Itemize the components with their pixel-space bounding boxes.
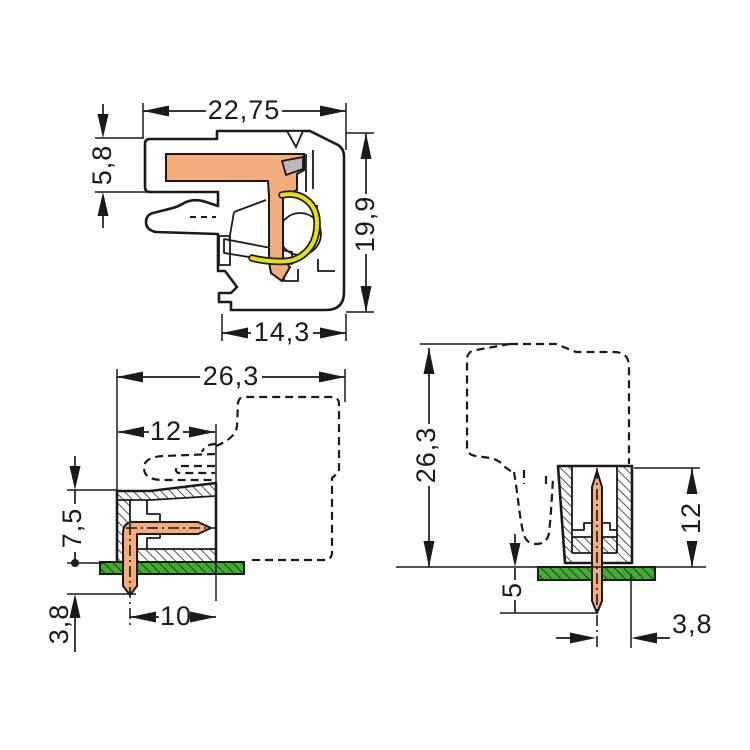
- dim-label-total-height: 26,3: [411, 427, 441, 484]
- dimension-height-right: 19,9: [346, 133, 380, 312]
- dimension-pin-offset: 10: [130, 601, 216, 631]
- dim-label-housing-width: 12: [150, 416, 182, 446]
- dimension-housing-height: 12: [634, 468, 706, 567]
- dim-label-height-above-board: 7,5: [57, 508, 87, 549]
- mating-connector-outline-2: [467, 344, 629, 472]
- chamber-wall-lines: [229, 200, 266, 241]
- technical-drawing-page: 22,75 5,8 19,9 14,3: [0, 0, 750, 750]
- wire-entry-funnel: [287, 131, 303, 147]
- dim-label-pin-edge-offset: 3,8: [672, 609, 713, 639]
- view-angled-header: 26,3 12 7,5 3,8 10: [44, 361, 345, 652]
- pcb-board: [100, 562, 244, 574]
- housing-hatch-bottom: [130, 549, 216, 563]
- dimension-width-bottom: 14,3: [222, 314, 346, 347]
- dimension-pin-edge-offset: 3,8: [556, 574, 713, 648]
- dim-label-total-width: 26,3: [203, 361, 260, 391]
- mating-connector-outline: [216, 397, 339, 560]
- view-side-section: 22,75 5,8 19,9 14,3: [87, 95, 380, 347]
- dimension-width-top: 22,75: [143, 95, 346, 150]
- dim-label-height-right: 19,9: [350, 196, 380, 253]
- dim-label-pin-below-board: 3,8: [44, 604, 74, 645]
- dimension-height-above-board: 7,5: [57, 456, 117, 567]
- dim-label-housing-height: 12: [676, 502, 706, 534]
- housing2-hatch-left: [558, 467, 572, 562]
- dimension-housing-width: 12: [118, 416, 215, 446]
- housing2-hatch-right: [617, 467, 631, 562]
- mating-lever-pocket: [514, 470, 553, 544]
- dimension-total-height: 26,3: [411, 344, 512, 567]
- board-datum-dot: [71, 559, 79, 567]
- dim-label-height-left: 5,8: [87, 145, 117, 186]
- dim-label-pin-below-board-2: 5: [497, 582, 527, 598]
- technical-drawing-canvas: 22,75 5,8 19,9 14,3: [0, 0, 750, 750]
- dimension-pin-below-board: 3,8: [44, 594, 136, 652]
- view-straight-header: 26,3 12 5 3,8: [396, 344, 713, 648]
- mating-lever-outline: [144, 444, 216, 480]
- dim-label-pin-offset: 10: [160, 601, 192, 631]
- dim-label-width-bottom: 14,3: [254, 317, 311, 347]
- dimension-height-left: 5,8: [87, 104, 149, 228]
- dim-label-width-top: 22,75: [208, 95, 281, 125]
